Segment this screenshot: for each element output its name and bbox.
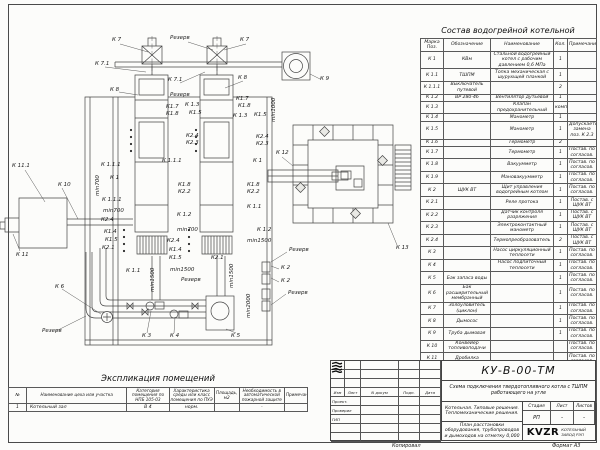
col-podp: Подп. (399, 388, 420, 397)
parts-row: К 2 ЩУК ВТ Щит управления водогрейным ко… (421, 184, 597, 197)
pump-k4-icon (170, 310, 178, 318)
plan-label: К1.5 (105, 238, 118, 244)
part-note: Постав. по согласов. (568, 315, 597, 328)
part-name (491, 81, 554, 94)
room-area (214, 404, 239, 411)
part-mark: К 2.3 (421, 222, 444, 235)
plan-label: min700 (103, 209, 124, 215)
parts-row: К 1.8 Вакуумметр 1 Постав. по согласов. (421, 159, 597, 172)
part-note: Постав. по согласов. (568, 184, 597, 197)
part-note (568, 101, 597, 114)
part-code: Бак запаса воды (444, 272, 491, 285)
part-note: Постав. по согласов. (568, 159, 597, 172)
part-mark: К 7 (421, 302, 444, 315)
plan-label: К 8 (110, 88, 119, 94)
plan-label: К1.5 (169, 256, 182, 262)
stoker-grates (137, 236, 232, 254)
plan-label: К 4 (170, 334, 179, 340)
part-mark: К 1.5 (421, 121, 444, 139)
part-qty: 1 (554, 272, 568, 285)
parts-row: К 1.2 ВР 280-46 Вентилятор дутьевой 1 (421, 94, 597, 101)
part-name: Электроконтактный манометр (491, 222, 554, 235)
plan-label: К 7 (240, 38, 249, 44)
sheets-value: - (574, 410, 595, 424)
plan-label: К2.2 (247, 190, 260, 196)
parts-row: К 2.4 Термопреобразователь 2 Постав. с Щ… (421, 234, 597, 247)
rooms-table-header: Площадь, м2 (214, 388, 239, 404)
plan-label: min1000 (272, 98, 278, 122)
parts-row: К 1.3 Клапан предохранительный компл (421, 101, 597, 114)
part-code (444, 171, 491, 184)
plan-label: К 3 (142, 334, 151, 340)
plan-label: К 2 (281, 266, 290, 272)
part-code (444, 159, 491, 172)
plan-label: К 6 (55, 285, 64, 291)
plan-label: К 7 (112, 38, 121, 44)
part-name (491, 272, 554, 285)
plan-label: Резерв (170, 93, 190, 99)
room-fire-protection: - (239, 404, 284, 411)
part-note (568, 81, 597, 94)
col-ndocum: N докум (361, 388, 399, 397)
parts-row: К 1.7 Термометр 1 Постав. по согласов. (421, 146, 597, 159)
rooms-table-body: 1 Котельный зал В 4 норм. - (9, 404, 308, 411)
parts-table-header: Марка Поз. (421, 39, 444, 52)
part-code: Труба дымовая (444, 327, 491, 340)
plan-label: К2.3 (186, 141, 199, 147)
part-mark: К 2.4 (421, 234, 444, 247)
plan-label: К 1.1 (247, 205, 261, 211)
part-code: Конвейер топливоподачи (444, 340, 491, 353)
part-name: Датчик контроля разряжения (491, 209, 554, 222)
stage-value: РП (523, 410, 551, 424)
part-code (444, 247, 491, 260)
room-note (284, 404, 307, 411)
plan-label: К1.4 (104, 230, 117, 236)
parts-table-section: Состав водогрейной котельной Марка Поз.О… (420, 26, 596, 403)
plan-label: К 7.1 (168, 78, 182, 84)
rooms-table-section: Экспликация помещений №Наименование цеха… (8, 374, 308, 412)
plan-label: К 2 (281, 279, 290, 285)
drawing-sheet: К 7РезервК 7К 7.1К 7.1К 8К 8РезервК 9К1.… (0, 0, 600, 450)
role-gip: ГИП (331, 415, 361, 424)
part-qty: 1 (554, 146, 568, 159)
part-code (444, 209, 491, 222)
plan-label: К1.4 (169, 248, 182, 254)
plan-label: К1.8 (238, 104, 251, 110)
plan-label: К 8 (238, 76, 247, 82)
part-note: Постав. с ЩУК ВТ (568, 222, 597, 235)
part-note (568, 139, 597, 146)
part-qty: 1 (554, 327, 568, 340)
plan-label: К2.1 (102, 246, 115, 252)
part-note: Постав. по согласов. (568, 302, 597, 315)
parts-row: К 1.4 Манометр 1 (421, 114, 597, 121)
plan-label: К 1.1.1 (101, 163, 121, 169)
part-name: Термометр (491, 139, 554, 146)
parts-row: К 1.1.1 Выключатель путевой 2 (421, 81, 597, 94)
slag-removal-structure (268, 125, 411, 223)
parts-row: К 1.1 ТШПМ Топка механическая с шурующей… (421, 69, 597, 82)
part-note: Постав. с ЩУК ВТ (568, 197, 597, 210)
part-name: Манометр (491, 114, 554, 121)
plan-label: К1.5 (254, 113, 267, 119)
rooms-row: 1 Котельный зал В 4 норм. - (9, 404, 308, 411)
plan-label: min1500 (247, 239, 271, 245)
part-mark: К 3 (421, 247, 444, 260)
expansion-tank-icon (102, 312, 113, 323)
plan-label: К 1.1.1 (162, 159, 182, 165)
part-qty: 1 (554, 247, 568, 260)
parts-row: К 1.6 Термометр 2 (421, 139, 597, 146)
plan-label: К 1 (253, 159, 262, 165)
part-mark: К 9 (421, 327, 444, 340)
rooms-table-title: Экспликация помещений (8, 374, 308, 384)
part-code: Золоуловитель (циклон) (444, 302, 491, 315)
part-mark: К 4 (421, 259, 444, 272)
plan-label: К 13 (396, 246, 409, 252)
part-mark: К 1.2 (421, 94, 444, 101)
plan-label: К1.7 (236, 97, 249, 103)
copied-label: Копировал (392, 443, 421, 449)
part-qty: 1 (554, 121, 568, 139)
part-name: Насос циркуляционный теплосети (491, 247, 554, 260)
parts-table-header: Наименование (491, 39, 554, 52)
part-qty: 2 (554, 139, 568, 146)
plan-label: К1.8 (166, 112, 179, 118)
title-block: Изм Лист N докум Подп. Дата Проект. Пров… (330, 360, 596, 441)
part-qty: 1 (554, 197, 568, 210)
part-qty: 1 (554, 222, 568, 235)
part-name: Насос подпиточный теплосети (491, 259, 554, 272)
part-qty: 1 (554, 171, 568, 184)
plan-label: Резерв (181, 278, 201, 284)
part-qty: 1 (554, 94, 568, 101)
plan-label: К 1.1 (126, 269, 140, 275)
chimney-icon (282, 52, 310, 80)
sheet-value: - (551, 410, 574, 424)
part-qty: 1 (554, 184, 568, 197)
part-code: КВм (444, 51, 491, 69)
plan-label: К2.2 (178, 190, 191, 196)
part-mark: К 5 (421, 272, 444, 285)
part-code (444, 114, 491, 121)
part-mark: К 2 (421, 184, 444, 197)
plan-label: min1500 (170, 268, 194, 274)
stage-label: Стадия (523, 402, 551, 410)
parts-table-header: Кол. (554, 39, 568, 52)
doc-title: Схема подключения твердотопливного котла… (442, 381, 595, 402)
plan-label: К 11 (16, 253, 29, 259)
parts-row: К 1.9 Мановакуумметр 1 Постав. по соглас… (421, 171, 597, 184)
part-qty (554, 340, 568, 353)
cyclone-icons (142, 38, 227, 75)
sheet-title: План расстановки оборудования, трубопров… (442, 422, 522, 441)
part-qty: 2 (554, 234, 568, 247)
part-note: Постав. по согласов. (568, 259, 597, 272)
parts-row: К 8 Дымосос 1 Постав. по согласов. (421, 315, 597, 328)
control-cabinets (262, 262, 270, 311)
part-qty: 1 (554, 259, 568, 272)
plan-label: К1.7 (166, 105, 179, 111)
role-designer: Проект. (331, 397, 361, 406)
part-name (491, 284, 554, 302)
part-mark: К 2.1 (421, 197, 444, 210)
part-qty: 1 (554, 209, 568, 222)
part-name: Термометр (491, 146, 554, 159)
rooms-table-header-row: №Наименование цеха или участкаКатегория … (9, 388, 308, 404)
parts-row: К 7 Золоуловитель (циклон) 1 Постав. по … (421, 302, 597, 315)
part-note (568, 114, 597, 121)
plan-label: К2.4 (256, 135, 269, 141)
rooms-table-header: Необходимость в автоматической пожарной … (239, 388, 284, 404)
part-name: Топка механическая с шурующей планкой (491, 69, 554, 82)
part-qty: 2 (554, 81, 568, 94)
parts-table: Марка Поз.ОбозначениеНаименованиеКол.При… (420, 38, 597, 403)
sheets-label: Листов (574, 402, 595, 410)
plan-label: Резерв (170, 36, 190, 42)
plan-label: К1.5 (189, 111, 202, 117)
part-code (444, 234, 491, 247)
stairs-icon (395, 145, 411, 190)
room-name: Котельный зал (27, 404, 127, 411)
part-note: Постав. с ЩУК ВТ (568, 209, 597, 222)
part-mark: К 2.2 (421, 209, 444, 222)
plan-label: К 12 (276, 151, 289, 157)
logo-caption: КОТЕЛЬНЫЙ ЗАВОД РЭП (561, 428, 591, 437)
parts-row: К 2.1 Реле протока 1 Постав. с ЩУК ВТ (421, 197, 597, 210)
part-mark: К 1.1.1 (421, 81, 444, 94)
part-note: Постав. с ЩУК ВТ (568, 234, 597, 247)
stage-table: Стадия Лист Листов РП - - (523, 402, 595, 425)
part-qty: компл (554, 101, 568, 114)
part-qty: 1 (554, 69, 568, 82)
parts-row: К 4 Насос подпиточный теплосети 1 Постав… (421, 259, 597, 272)
logo-text: KVZR (527, 427, 559, 438)
parts-table-header-row: Марка Поз.ОбозначениеНаименованиеКол.При… (421, 39, 597, 52)
parts-row: К 1 КВм Стальной водогрейный котел с раб… (421, 51, 597, 69)
part-qty: 1 (554, 315, 568, 328)
plan-label: К2.1 (211, 256, 224, 262)
water-tank-icon (206, 296, 234, 330)
room-category: В 4 (127, 404, 169, 411)
part-note: Допускается замена поз. К 2.3 (568, 121, 597, 139)
part-mark: К 1.3 (421, 101, 444, 114)
part-note (568, 51, 597, 69)
plan-label: Резерв (42, 329, 62, 335)
part-code: Выключатель путевой (444, 81, 491, 94)
part-qty: 1 (554, 284, 568, 302)
rooms-table: №Наименование цеха или участкаКатегория … (8, 387, 308, 412)
parts-table-title: Состав водогрейной котельной (420, 26, 596, 35)
part-note (568, 94, 597, 101)
part-name: Термопреобразователь (491, 234, 554, 247)
plan-label: min700 (177, 228, 198, 234)
part-code: Бак расширительный мембранный (444, 284, 491, 302)
parts-table-header: Обозначение (444, 39, 491, 52)
part-qty: 1 (554, 51, 568, 69)
col-list: Лист (345, 388, 361, 397)
part-code (444, 146, 491, 159)
part-name: Стальной водогрейный котел с рабочим дав… (491, 51, 554, 69)
part-name (491, 327, 554, 340)
plan-label: min700 (96, 175, 102, 196)
plan-label: К 11.1 (12, 164, 30, 170)
part-qty: 1 (554, 159, 568, 172)
part-note: Постав. по согласов. (568, 171, 597, 184)
project-name: Котельная. Типовые решения. Тепломеханич… (442, 402, 522, 422)
plan-label: Резерв (288, 291, 308, 297)
part-mark: К 1.1 (421, 69, 444, 82)
part-code: ТШПМ (444, 69, 491, 82)
part-name: Мановакуумметр (491, 171, 554, 184)
part-mark: К 1 (421, 51, 444, 69)
parts-row: К 6 Бак расширительный мембранный 1 Пост… (421, 284, 597, 302)
part-code: ЩУК ВТ (444, 184, 491, 197)
col-data: Дата (420, 388, 441, 397)
parts-table-body: К 1 КВм Стальной водогрейный котел с раб… (421, 51, 597, 403)
part-note: Постав. по согласов. (568, 272, 597, 285)
plan-label: min1500 (151, 268, 157, 292)
sheet-label: Лист (551, 402, 574, 410)
part-note: Постав. по согласов. (568, 247, 597, 260)
part-note: Постав. по согласов. (568, 146, 597, 159)
part-code (444, 101, 491, 114)
part-mark: К 6 (421, 284, 444, 302)
part-name: Вакуумметр (491, 159, 554, 172)
flue-duct (115, 36, 282, 78)
plan-label: К1.8 (247, 183, 260, 189)
rooms-table-header: № (9, 388, 27, 404)
role-checker: Проверил (331, 406, 361, 415)
part-code (444, 197, 491, 210)
rooms-table-header: Примечание (284, 388, 307, 404)
plan-label: К 5 (231, 334, 240, 340)
boiler-left (135, 75, 168, 232)
room-environment: норм. (169, 404, 214, 411)
plan-label: min1500 (230, 264, 236, 288)
col-izm: Изм (331, 388, 345, 397)
plan-label: К1.8 (178, 183, 191, 189)
part-name: Манометр (491, 121, 554, 139)
part-name: Клапан предохранительный (491, 101, 554, 114)
part-name: Вентилятор дутьевой (491, 94, 554, 101)
parts-row: К 2.2 Датчик контроля разряжения 1 Поста… (421, 209, 597, 222)
parts-row: К 10 Конвейер топливоподачи Постав. по с… (421, 340, 597, 353)
rooms-table-header: Категория помещения по НПБ 105-03 (127, 388, 169, 404)
part-name: Реле протока (491, 197, 554, 210)
parts-row: К 1.5 Манометр 1 Допускается замена поз.… (421, 121, 597, 139)
part-name (491, 340, 554, 353)
parts-row: К 9 Труба дымовая 1 Постав. по согласов. (421, 327, 597, 340)
room-num: 1 (9, 404, 27, 411)
logo-waves-icon (331, 361, 343, 373)
part-note: Постав. по согласов. (568, 284, 597, 302)
rooms-table-header: Наименование цеха или участка (27, 388, 127, 404)
plan-label: К2.4 (186, 134, 199, 140)
plan-label: К2.4 (167, 239, 180, 245)
plan-label: К 1.1.1 (102, 198, 122, 204)
doc-number: КУ-В-00-ТМ (442, 361, 595, 381)
plan-label: К 7.1 (95, 62, 109, 68)
part-name (491, 315, 554, 328)
plan-label: К 1.2 (257, 228, 271, 234)
parts-row: К 2.3 Электроконтактный манометр 1 Поста… (421, 222, 597, 235)
plan-label: К 1.3 (233, 114, 247, 120)
title-block-revisions: Изм Лист N докум Подп. Дата Проект. Пров… (331, 361, 442, 440)
part-mark: К 10 (421, 340, 444, 353)
part-mark: К 1.7 (421, 146, 444, 159)
part-mark: К 1.9 (421, 171, 444, 184)
plan-label: Резерв (289, 248, 309, 254)
parts-table-header: Примечание (568, 39, 597, 52)
parts-row: К 3 Насос циркуляционный теплосети 1 Пос… (421, 247, 597, 260)
part-code (444, 259, 491, 272)
plan-label: К 1 (110, 176, 119, 182)
plan-label: К 1.3 (185, 103, 199, 109)
part-code (444, 222, 491, 235)
part-note (568, 69, 597, 82)
part-code (444, 121, 491, 139)
part-mark: К 1.6 (421, 139, 444, 146)
plan-label: К 1.2 (177, 213, 191, 219)
part-note: Постав. по согласов. (568, 327, 597, 340)
part-qty: 1 (554, 114, 568, 121)
part-note: Постав. по согласов. (568, 340, 597, 353)
plan-label: К 9 (320, 77, 329, 83)
part-mark: К 8 (421, 315, 444, 328)
part-code: Дымосос (444, 315, 491, 328)
part-mark: К 1.8 (421, 159, 444, 172)
plan-label: К 10 (58, 183, 71, 189)
plan-label: К2.4 (101, 218, 114, 224)
plan-label: min2000 (247, 294, 253, 318)
part-name (491, 302, 554, 315)
part-code: ВР 280-46 (444, 94, 491, 101)
company-logo: KVZR КОТЕЛЬНЫЙ ЗАВОД РЭП (523, 425, 595, 440)
format-label: Формат А3 (552, 443, 580, 449)
part-code (444, 139, 491, 146)
boiler-right (200, 75, 233, 232)
parts-row: К 5 Бак запаса воды 1 Постав. по согласо… (421, 272, 597, 285)
part-qty: 1 (554, 302, 568, 315)
part-name: Щит управления водогрейным котлом (491, 184, 554, 197)
plan-label: К2.3 (256, 142, 269, 148)
part-mark: К 1.4 (421, 114, 444, 121)
rooms-table-header: Характеристика среды или класс помещения… (169, 388, 214, 404)
